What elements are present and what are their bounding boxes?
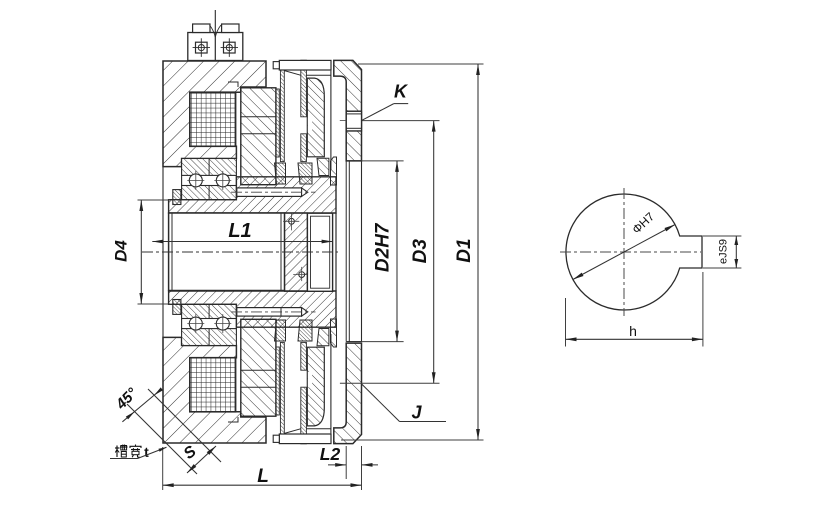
svg-text:L: L: [257, 466, 269, 487]
svg-text:L2: L2: [320, 444, 341, 464]
svg-text:eJS9: eJS9: [718, 239, 730, 264]
svg-text:K: K: [394, 82, 409, 102]
svg-text:D1: D1: [454, 238, 475, 262]
svg-text:t: t: [144, 444, 149, 460]
svg-text:h: h: [629, 323, 637, 339]
svg-text:D3: D3: [410, 239, 431, 264]
svg-text:J: J: [411, 403, 422, 423]
svg-text:L1: L1: [228, 220, 251, 242]
svg-text:D4: D4: [112, 240, 131, 262]
svg-text:D2H7: D2H7: [373, 222, 394, 272]
